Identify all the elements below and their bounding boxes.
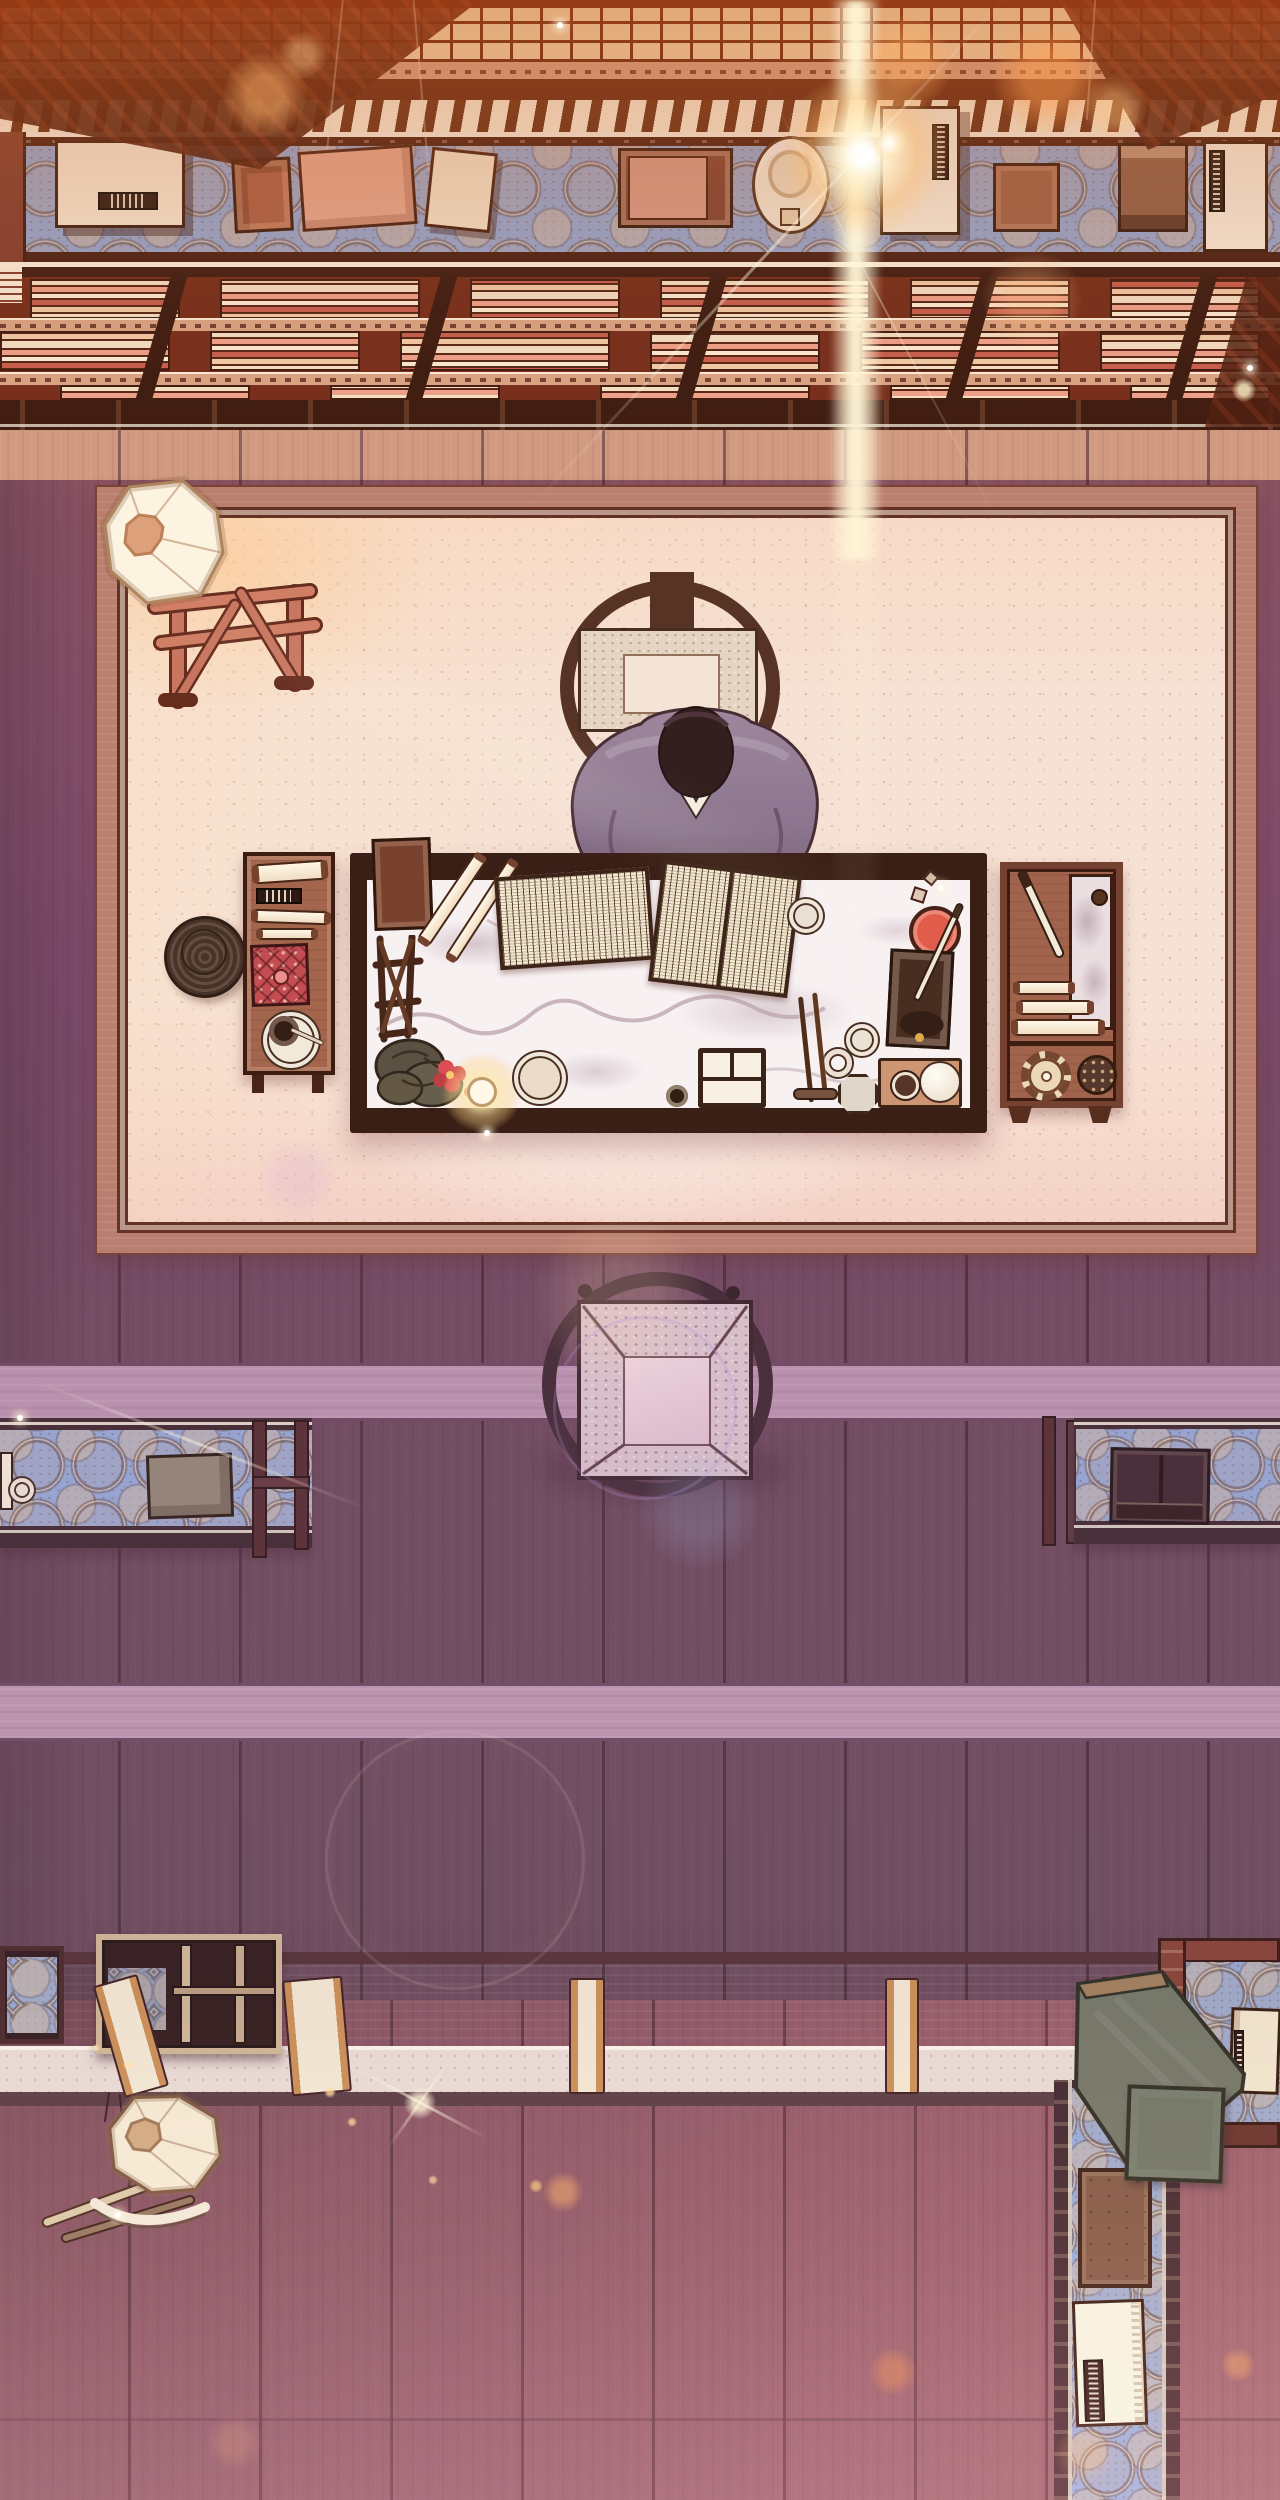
ring-dish [824, 1049, 852, 1077]
name-plaque [256, 888, 302, 904]
shelf-gap [0, 267, 1280, 277]
white-cup [10, 1478, 34, 1502]
open-text-scroll [494, 867, 655, 971]
frame-highlight [1074, 1525, 1280, 1528]
table-trestle [252, 1420, 310, 1560]
white-box [55, 140, 185, 228]
ink-gold-dot [915, 1033, 924, 1042]
trestle-post [252, 1420, 267, 1558]
scroll-roll [1016, 1000, 1094, 1015]
chest-lid-panel [628, 156, 708, 220]
brown-box [993, 163, 1060, 232]
shelf-rail [0, 372, 1280, 385]
wooden-cube-box [231, 157, 294, 234]
guest-chair-seat [577, 1300, 753, 1480]
box-label-plaque [98, 192, 158, 210]
scene-root [0, 0, 1280, 2500]
open-book [648, 860, 802, 998]
scroll-roll [251, 859, 328, 884]
scroll-label [1209, 150, 1225, 212]
shelf-divider [1007, 1041, 1116, 1046]
octagon-dish [838, 1074, 878, 1114]
serving-plate [514, 1052, 566, 1104]
water-cup [846, 1024, 878, 1056]
long-table-right [1042, 1412, 1280, 1550]
book-stack [890, 385, 1070, 400]
scroll-roll [1013, 981, 1075, 995]
trestle-post [1042, 1416, 1056, 1546]
brown-book [1118, 143, 1188, 232]
white-book [1072, 2299, 1148, 2427]
hat-buckle [780, 208, 800, 226]
gray-box [146, 1453, 234, 1520]
table-leg [252, 1075, 264, 1093]
book-stack [210, 331, 360, 371]
white-stack-endview [0, 267, 22, 303]
guest-chair-knob [726, 1286, 740, 1300]
white-book-label [1083, 2359, 1105, 2422]
cream-folio [424, 147, 498, 233]
lantern-octagon [105, 481, 223, 603]
scroll-roll [1011, 1019, 1105, 1036]
lantern-blade [95, 2203, 205, 2220]
frame-crossbar [172, 1986, 276, 1996]
bench-frame-stand [96, 1934, 282, 2054]
book-stack [470, 279, 620, 319]
brush-rest [793, 1088, 838, 1100]
page-lines [1131, 2304, 1143, 2420]
mini-table-blue [0, 1946, 64, 2044]
pink-board [297, 144, 417, 232]
bookshelf-wall [0, 0, 1280, 430]
book-stack [660, 279, 870, 319]
lantern-octagon [97, 2085, 232, 2207]
dark-fruit [892, 1072, 919, 1099]
basket-lid [181, 929, 227, 975]
mini-table-cloth [7, 1957, 57, 2033]
slab-knob [1091, 889, 1108, 906]
seat-perspective-lines [577, 1300, 753, 1480]
green-board-square [1124, 2084, 1225, 2183]
desk-wooden-box [371, 837, 433, 931]
patterned-plate [1077, 1055, 1117, 1095]
woven-basket [164, 916, 246, 998]
floor-lamp [95, 455, 345, 725]
book-rows [0, 277, 1280, 400]
book-stack [220, 279, 420, 319]
shelf-bottom-highlight [0, 424, 1280, 427]
small-pot [666, 1085, 688, 1107]
box-center-flower [273, 969, 290, 986]
book-spine-label [932, 124, 949, 180]
scroll-roll [251, 909, 331, 926]
table-leg [312, 1075, 324, 1093]
compartment [703, 1053, 730, 1077]
table-frame-bottom [0, 252, 1280, 262]
gear-hub [1041, 1071, 1052, 1082]
hat-crown-ring [768, 150, 812, 198]
gear-wheel [1021, 1051, 1071, 1101]
table-left-post [0, 132, 26, 268]
shelf-brush [1016, 868, 1066, 959]
book-page-left [653, 864, 730, 985]
book-stack [650, 331, 820, 371]
white-bun [919, 1061, 961, 1103]
candle [467, 1077, 497, 1107]
fallen-lantern [55, 2085, 295, 2245]
compartment [734, 1053, 761, 1077]
compartment-box [698, 1048, 766, 1108]
frame-highlight [1074, 1422, 1280, 1425]
trestle-bar [252, 1476, 310, 1489]
floor-beam [0, 1683, 1280, 1741]
shelf-rail [0, 318, 1280, 331]
frame-shelf-cloth [108, 1968, 166, 2030]
long-table-left [0, 1418, 312, 1548]
white-folio-edge [0, 1452, 13, 1510]
red-brocade-box [250, 943, 310, 1007]
book-stack [30, 279, 180, 319]
guest-chair-knob [578, 1284, 592, 1298]
book-stack [600, 385, 810, 400]
compartment [703, 1081, 761, 1103]
folding-book-stand [368, 935, 428, 1043]
side-shelf-right [1000, 862, 1123, 1108]
side-table-left [243, 852, 335, 1075]
lamp-stand [155, 591, 315, 700]
cabinet-base [1116, 1502, 1202, 1519]
book-page-right [720, 873, 797, 994]
tea-cup [789, 899, 823, 933]
dark-cabinet [1109, 1447, 1210, 1525]
scroll-roll [256, 928, 318, 940]
